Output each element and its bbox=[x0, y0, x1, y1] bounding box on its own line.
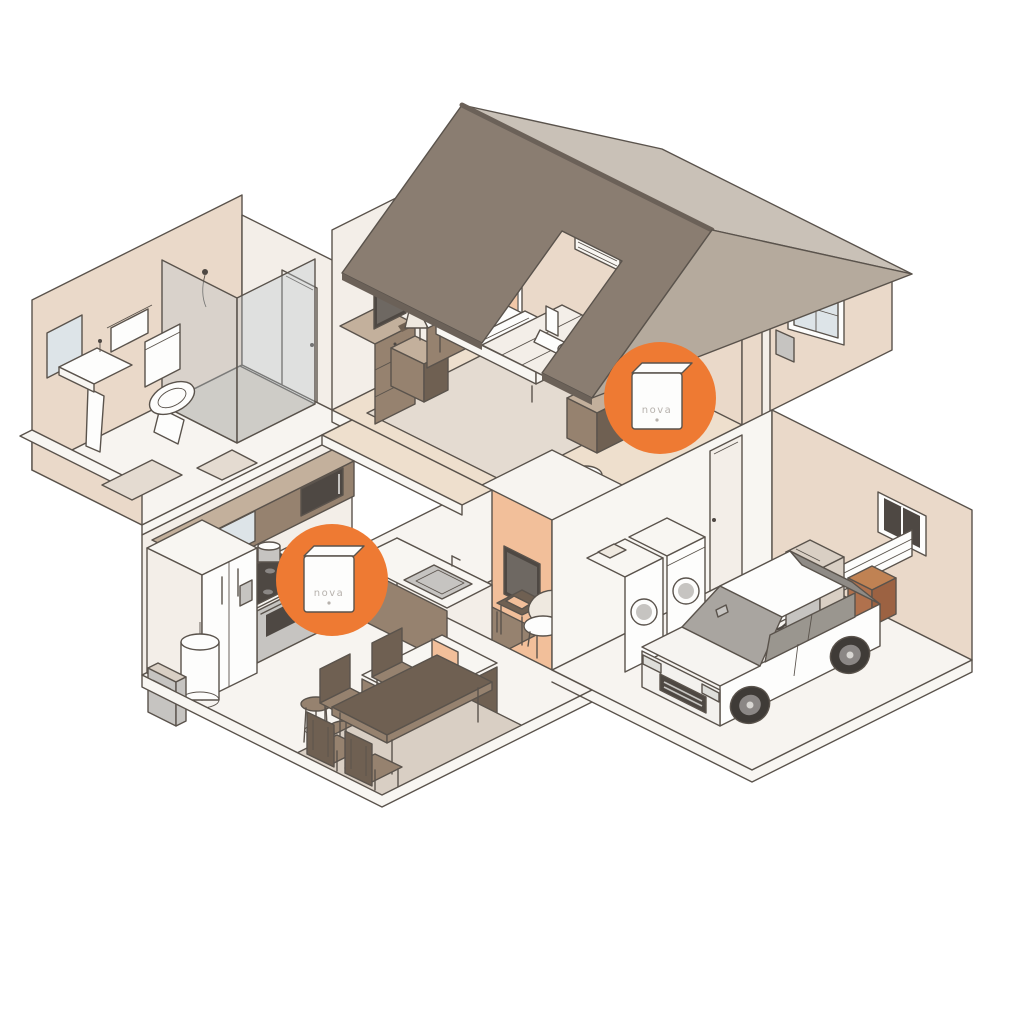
device-label: nova bbox=[642, 405, 673, 416]
device-callout-bedroom: nova bbox=[604, 342, 716, 454]
shower-head bbox=[202, 269, 208, 275]
illustration-stage: nova nova bbox=[0, 0, 1024, 1024]
device-label: nova bbox=[314, 588, 345, 599]
device-top bbox=[304, 546, 364, 556]
house-cutaway-illustration: nova nova bbox=[0, 0, 1024, 1024]
device-led bbox=[655, 418, 658, 421]
pot bbox=[258, 542, 280, 562]
device-led bbox=[327, 601, 330, 604]
device-callout-kitchen: nova bbox=[276, 524, 388, 636]
garage-entry-door bbox=[710, 435, 742, 591]
device-top bbox=[632, 363, 692, 373]
